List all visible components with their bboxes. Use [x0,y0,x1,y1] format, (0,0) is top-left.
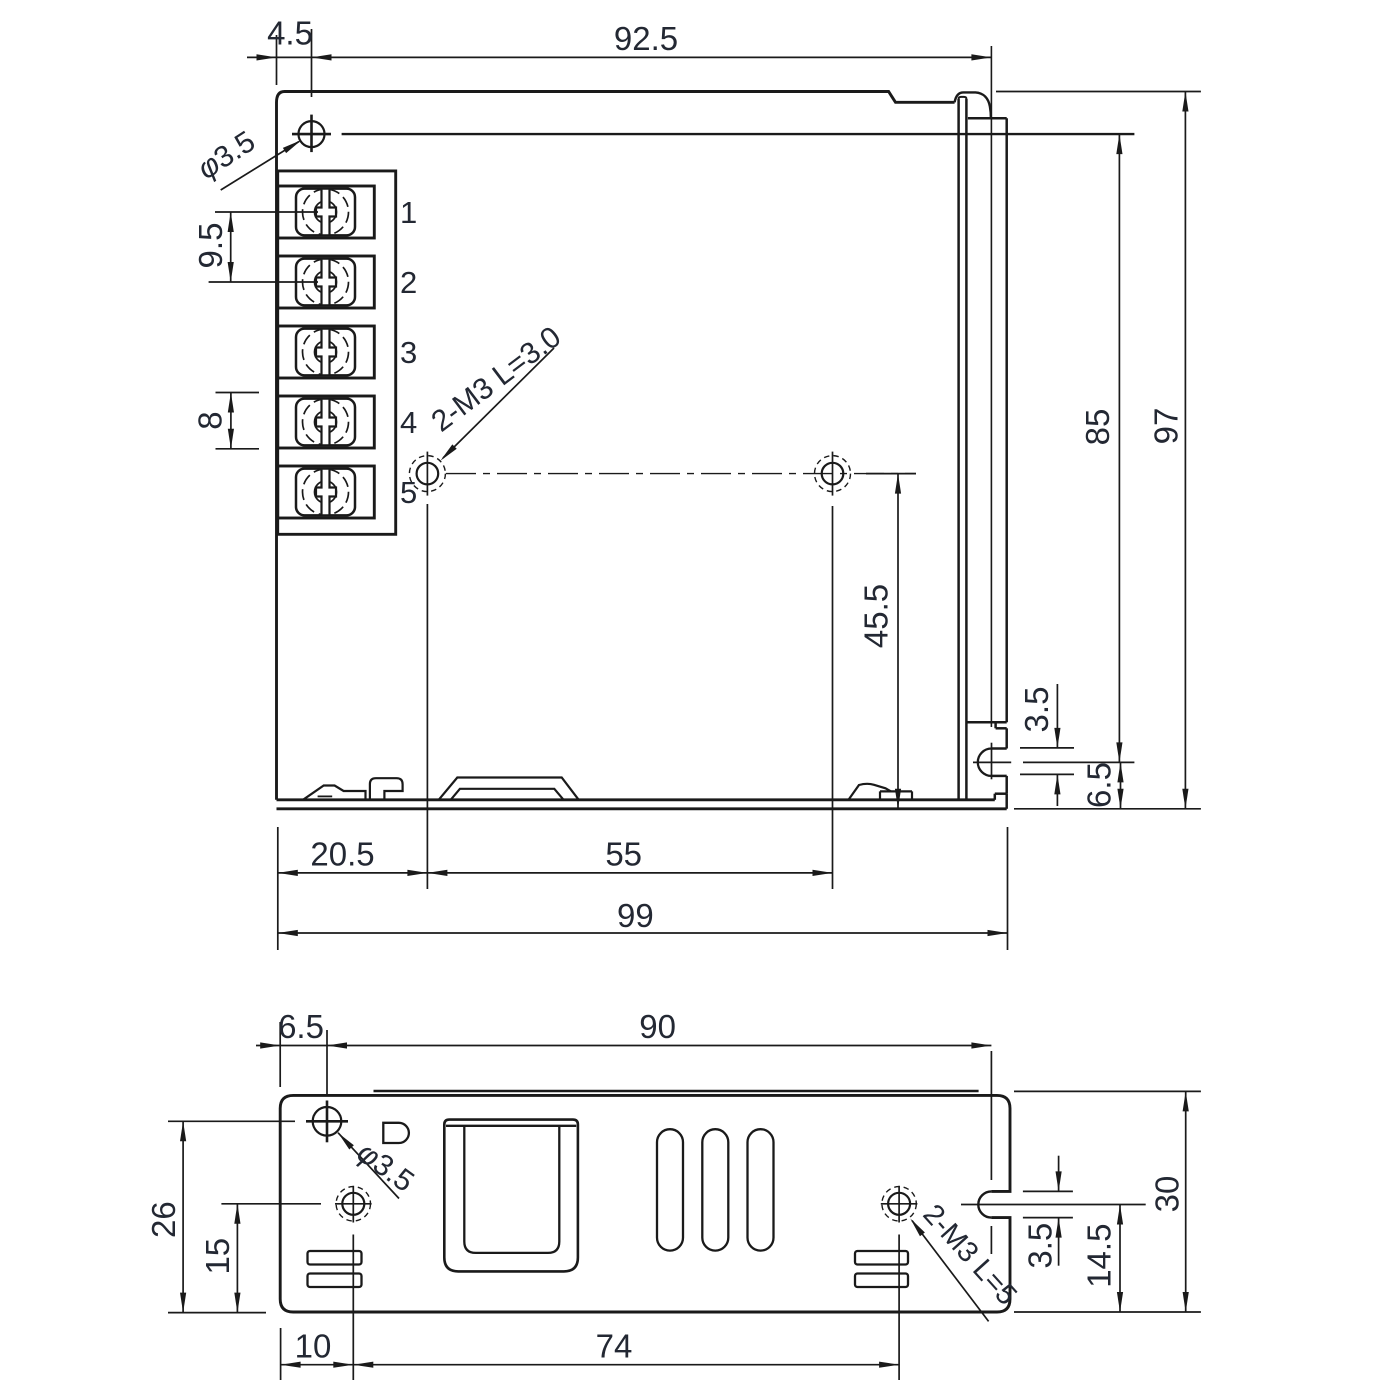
svg-text:10: 10 [295,1328,332,1365]
svg-text:4.5: 4.5 [267,15,313,52]
svg-text:97: 97 [1148,408,1185,445]
svg-text:92.5: 92.5 [614,20,678,57]
svg-text:3.5: 3.5 [1018,687,1055,733]
svg-text:9.5: 9.5 [192,223,229,269]
svg-text:4: 4 [400,405,417,440]
svg-text:3: 3 [400,335,417,370]
svg-text:3.5: 3.5 [1022,1223,1059,1269]
svg-text:15: 15 [199,1238,236,1275]
svg-text:55: 55 [605,836,642,873]
svg-text:26: 26 [145,1201,182,1238]
svg-text:99: 99 [617,897,654,934]
svg-text:6.5: 6.5 [1080,762,1117,808]
svg-text:8: 8 [192,411,229,429]
svg-text:45.5: 45.5 [858,584,895,648]
svg-text:30: 30 [1149,1176,1186,1213]
svg-text:6.5: 6.5 [278,1008,324,1045]
svg-text:85: 85 [1079,409,1116,446]
svg-text:5: 5 [400,475,417,510]
svg-text:14.5: 14.5 [1080,1224,1117,1288]
svg-text:74: 74 [596,1328,633,1365]
svg-text:90: 90 [639,1008,676,1045]
svg-text:2: 2 [400,265,417,300]
svg-text:1: 1 [400,195,417,230]
svg-text:20.5: 20.5 [310,836,374,873]
